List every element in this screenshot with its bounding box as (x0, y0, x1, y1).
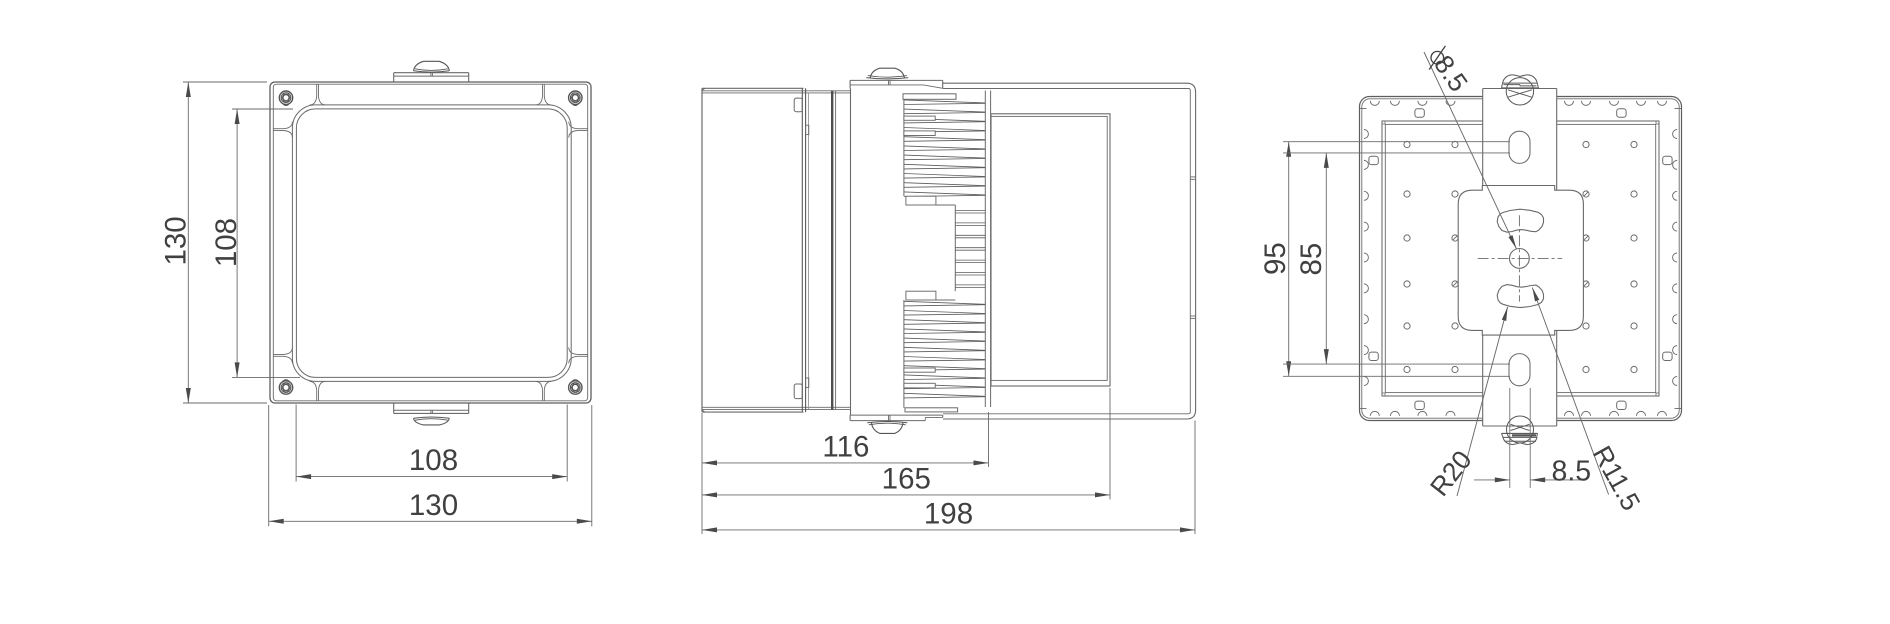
svg-text:130: 130 (409, 489, 458, 522)
svg-text:95: 95 (1259, 242, 1292, 275)
svg-text:85: 85 (1295, 243, 1328, 276)
svg-text:165: 165 (882, 462, 931, 495)
svg-text:130: 130 (160, 216, 193, 265)
svg-text:108: 108 (409, 444, 458, 477)
svg-text:108: 108 (210, 218, 243, 267)
svg-text:116: 116 (822, 430, 869, 463)
svg-text:198: 198 (924, 497, 973, 530)
svg-text:8.5: 8.5 (1552, 456, 1592, 488)
